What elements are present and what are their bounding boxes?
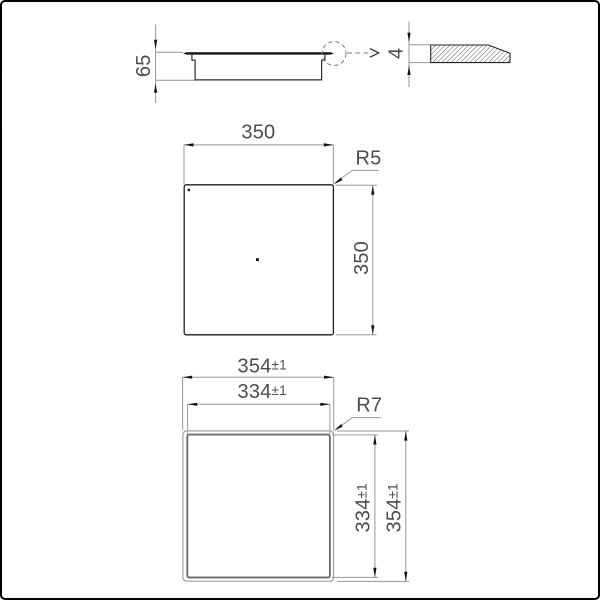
svg-text:R7: R7 [356,395,382,417]
svg-text:R5: R5 [356,148,382,170]
svg-text:350: 350 [241,122,275,144]
svg-text:65: 65 [133,54,155,77]
svg-text:4: 4 [386,48,408,59]
svg-text:350: 350 [351,241,373,275]
